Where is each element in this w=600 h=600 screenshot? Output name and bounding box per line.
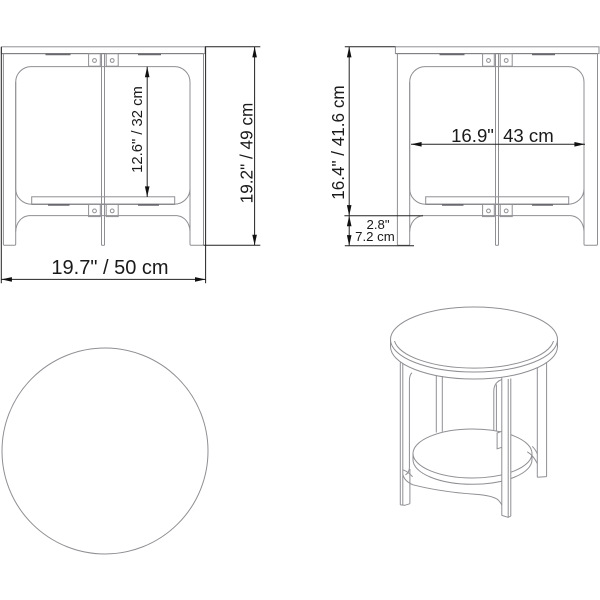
svg-text:43 cm: 43 cm — [503, 125, 554, 146]
svg-text:12.6" / 32 cm: 12.6" / 32 cm — [130, 86, 146, 173]
svg-text:16.4" / 41.6 cm: 16.4" / 41.6 cm — [329, 85, 348, 199]
svg-text:19.2" / 49 cm: 19.2" / 49 cm — [236, 103, 256, 204]
svg-text:19.7" / 50 cm: 19.7" / 50 cm — [51, 257, 168, 279]
svg-text:7.2 cm: 7.2 cm — [355, 229, 395, 244]
svg-text:16.9": 16.9" — [451, 125, 494, 146]
